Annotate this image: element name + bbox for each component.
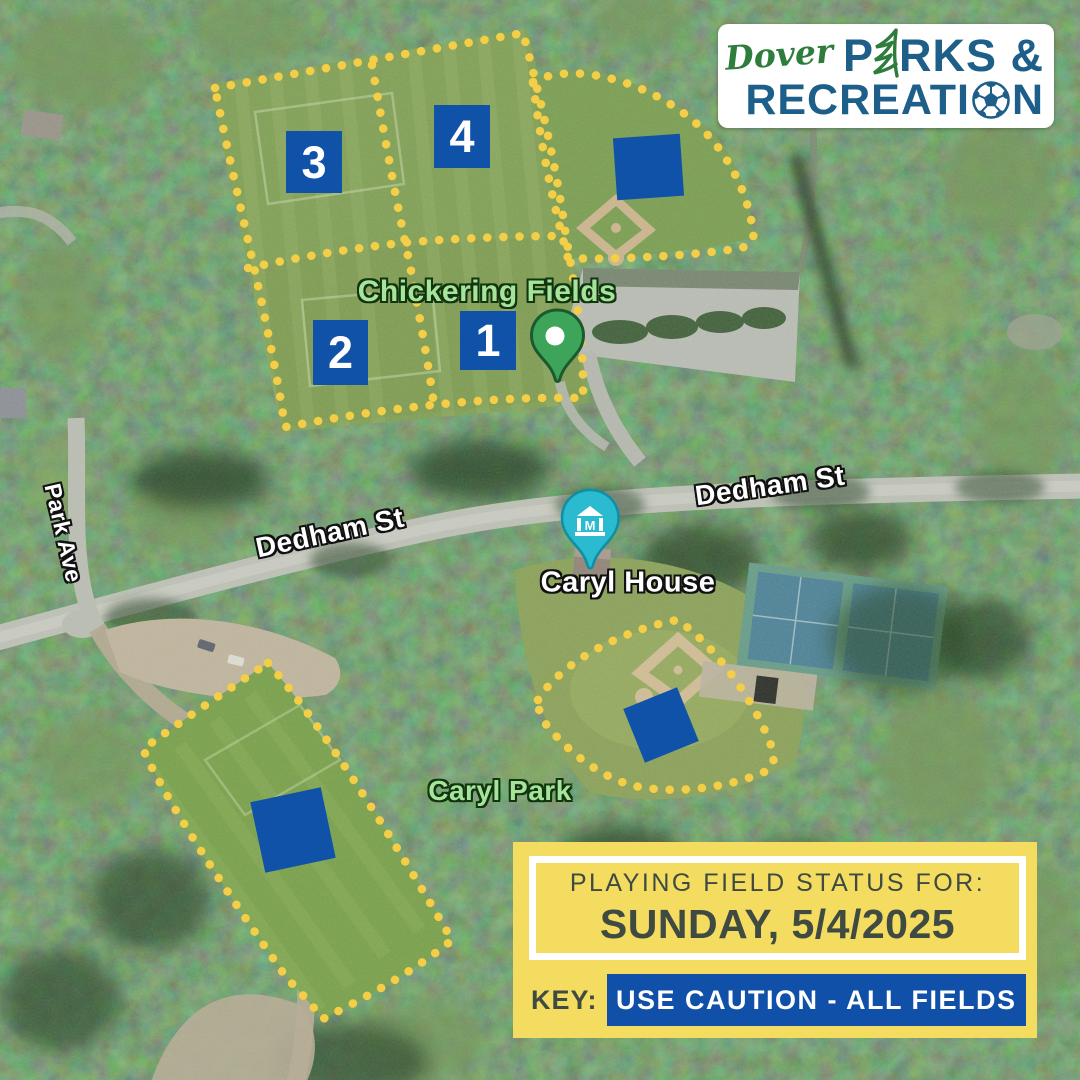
status-key-row: KEY: USE CAUTION - ALL FIELDS xyxy=(531,974,1026,1026)
logo-recreation-prefix: RECREATI xyxy=(745,81,970,120)
parks-rec-logo: Dover P RKS & RECREATI xyxy=(718,24,1054,128)
field-status-graphic: M 1 2 3 4 Chickering Fields Caryl Park C… xyxy=(0,0,1080,1080)
label-caryl-park: Caryl Park xyxy=(428,775,572,807)
marker-field-4-label: 4 xyxy=(449,114,474,159)
marker-field-1-label: 1 xyxy=(475,318,500,363)
marker-field-4: 4 xyxy=(434,105,490,168)
logo-row-recreation: RECREATI N xyxy=(745,78,1044,122)
marker-field-3: 3 xyxy=(286,131,342,193)
logo-parks-p: P xyxy=(843,36,874,77)
logo-recreation-suffix: N xyxy=(1012,81,1044,120)
label-chickering-fields: Chickering Fields xyxy=(358,275,617,309)
logo-dover-text: Dover xyxy=(724,31,835,77)
soccer-ball-icon xyxy=(971,80,1011,120)
logo-parks-rest: RKS & xyxy=(899,36,1044,77)
marker-field-2-label: 2 xyxy=(328,330,353,375)
marker-field-3-label: 3 xyxy=(301,140,326,185)
label-caryl-house: Caryl House xyxy=(541,567,716,600)
marker-field-2: 2 xyxy=(313,320,368,385)
status-title: PLAYING FIELD STATUS FOR: xyxy=(570,869,985,898)
marker-southwest-field xyxy=(250,787,335,872)
status-panel-box: PLAYING FIELD STATUS FOR: SUNDAY, 5/4/20… xyxy=(529,856,1026,960)
logo-row-parks: Dover P RKS & xyxy=(724,32,1044,76)
status-panel: PLAYING FIELD STATUS FOR: SUNDAY, 5/4/20… xyxy=(513,842,1037,1038)
logo-parks-text: P RKS & xyxy=(843,28,1044,76)
key-label: KEY: xyxy=(531,985,598,1016)
marker-north-ballfield xyxy=(613,134,684,201)
pine-tree-icon xyxy=(873,28,900,78)
key-status-badge: USE CAUTION - ALL FIELDS xyxy=(607,974,1026,1026)
status-date: SUNDAY, 5/4/2025 xyxy=(600,901,955,948)
marker-field-1: 1 xyxy=(460,311,516,370)
